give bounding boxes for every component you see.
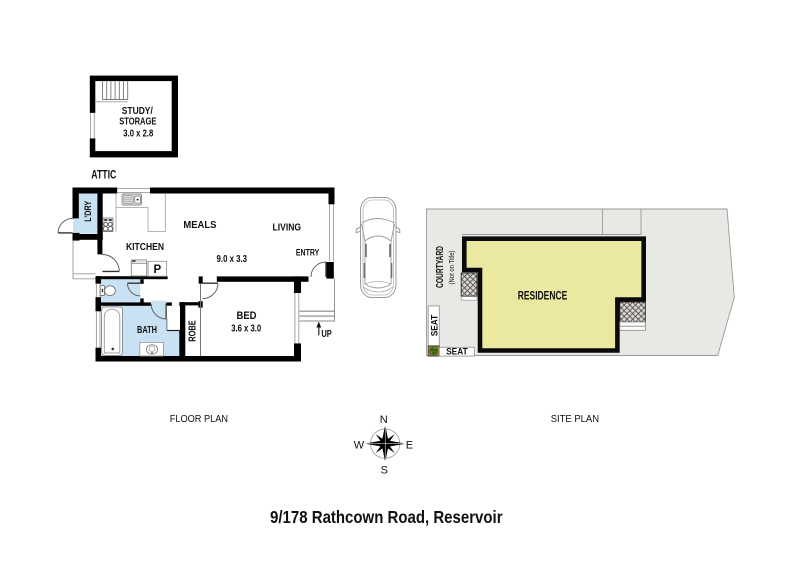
svg-text:3.6 x 3.0: 3.6 x 3.0 [231,322,261,334]
svg-text:P: P [153,264,161,276]
svg-text:ROBE: ROBE [187,320,198,342]
svg-text:RESIDENCE: RESIDENCE [518,291,568,303]
svg-text:COURTYARD: COURTYARD [435,246,446,288]
svg-text:ATTIC: ATTIC [91,169,116,181]
svg-text:LIVING: LIVING [273,222,302,234]
svg-text:STORAGE: STORAGE [119,116,156,128]
svg-text:9.0 x 3.3: 9.0 x 3.3 [217,253,248,265]
svg-text:SEAT: SEAT [429,314,439,336]
svg-text:9/178 Rathcown Road, Reservoir: 9/178 Rathcown Road, Reservoir [270,507,503,527]
svg-text:MEALS: MEALS [183,219,216,231]
svg-text:(Not on Title): (Not on Title) [447,250,456,284]
svg-text:S: S [381,464,388,476]
svg-text:SEAT: SEAT [446,347,468,357]
svg-text:L’DRY: L’DRY [83,201,93,222]
svg-text:FLOOR PLAN: FLOOR PLAN [170,414,228,425]
svg-text:W: W [354,439,365,451]
svg-text:KITCHEN: KITCHEN [126,241,164,253]
svg-text:3.0 x 2.8: 3.0 x 2.8 [123,128,153,139]
svg-text:ENTRY: ENTRY [296,248,320,259]
svg-text:E: E [406,439,413,451]
svg-text:BATH: BATH [137,324,157,336]
svg-text:BED: BED [237,310,257,322]
svg-text:N: N [380,414,388,426]
svg-text:UP: UP [321,329,332,340]
svg-text:SITE PLAN: SITE PLAN [551,414,599,425]
